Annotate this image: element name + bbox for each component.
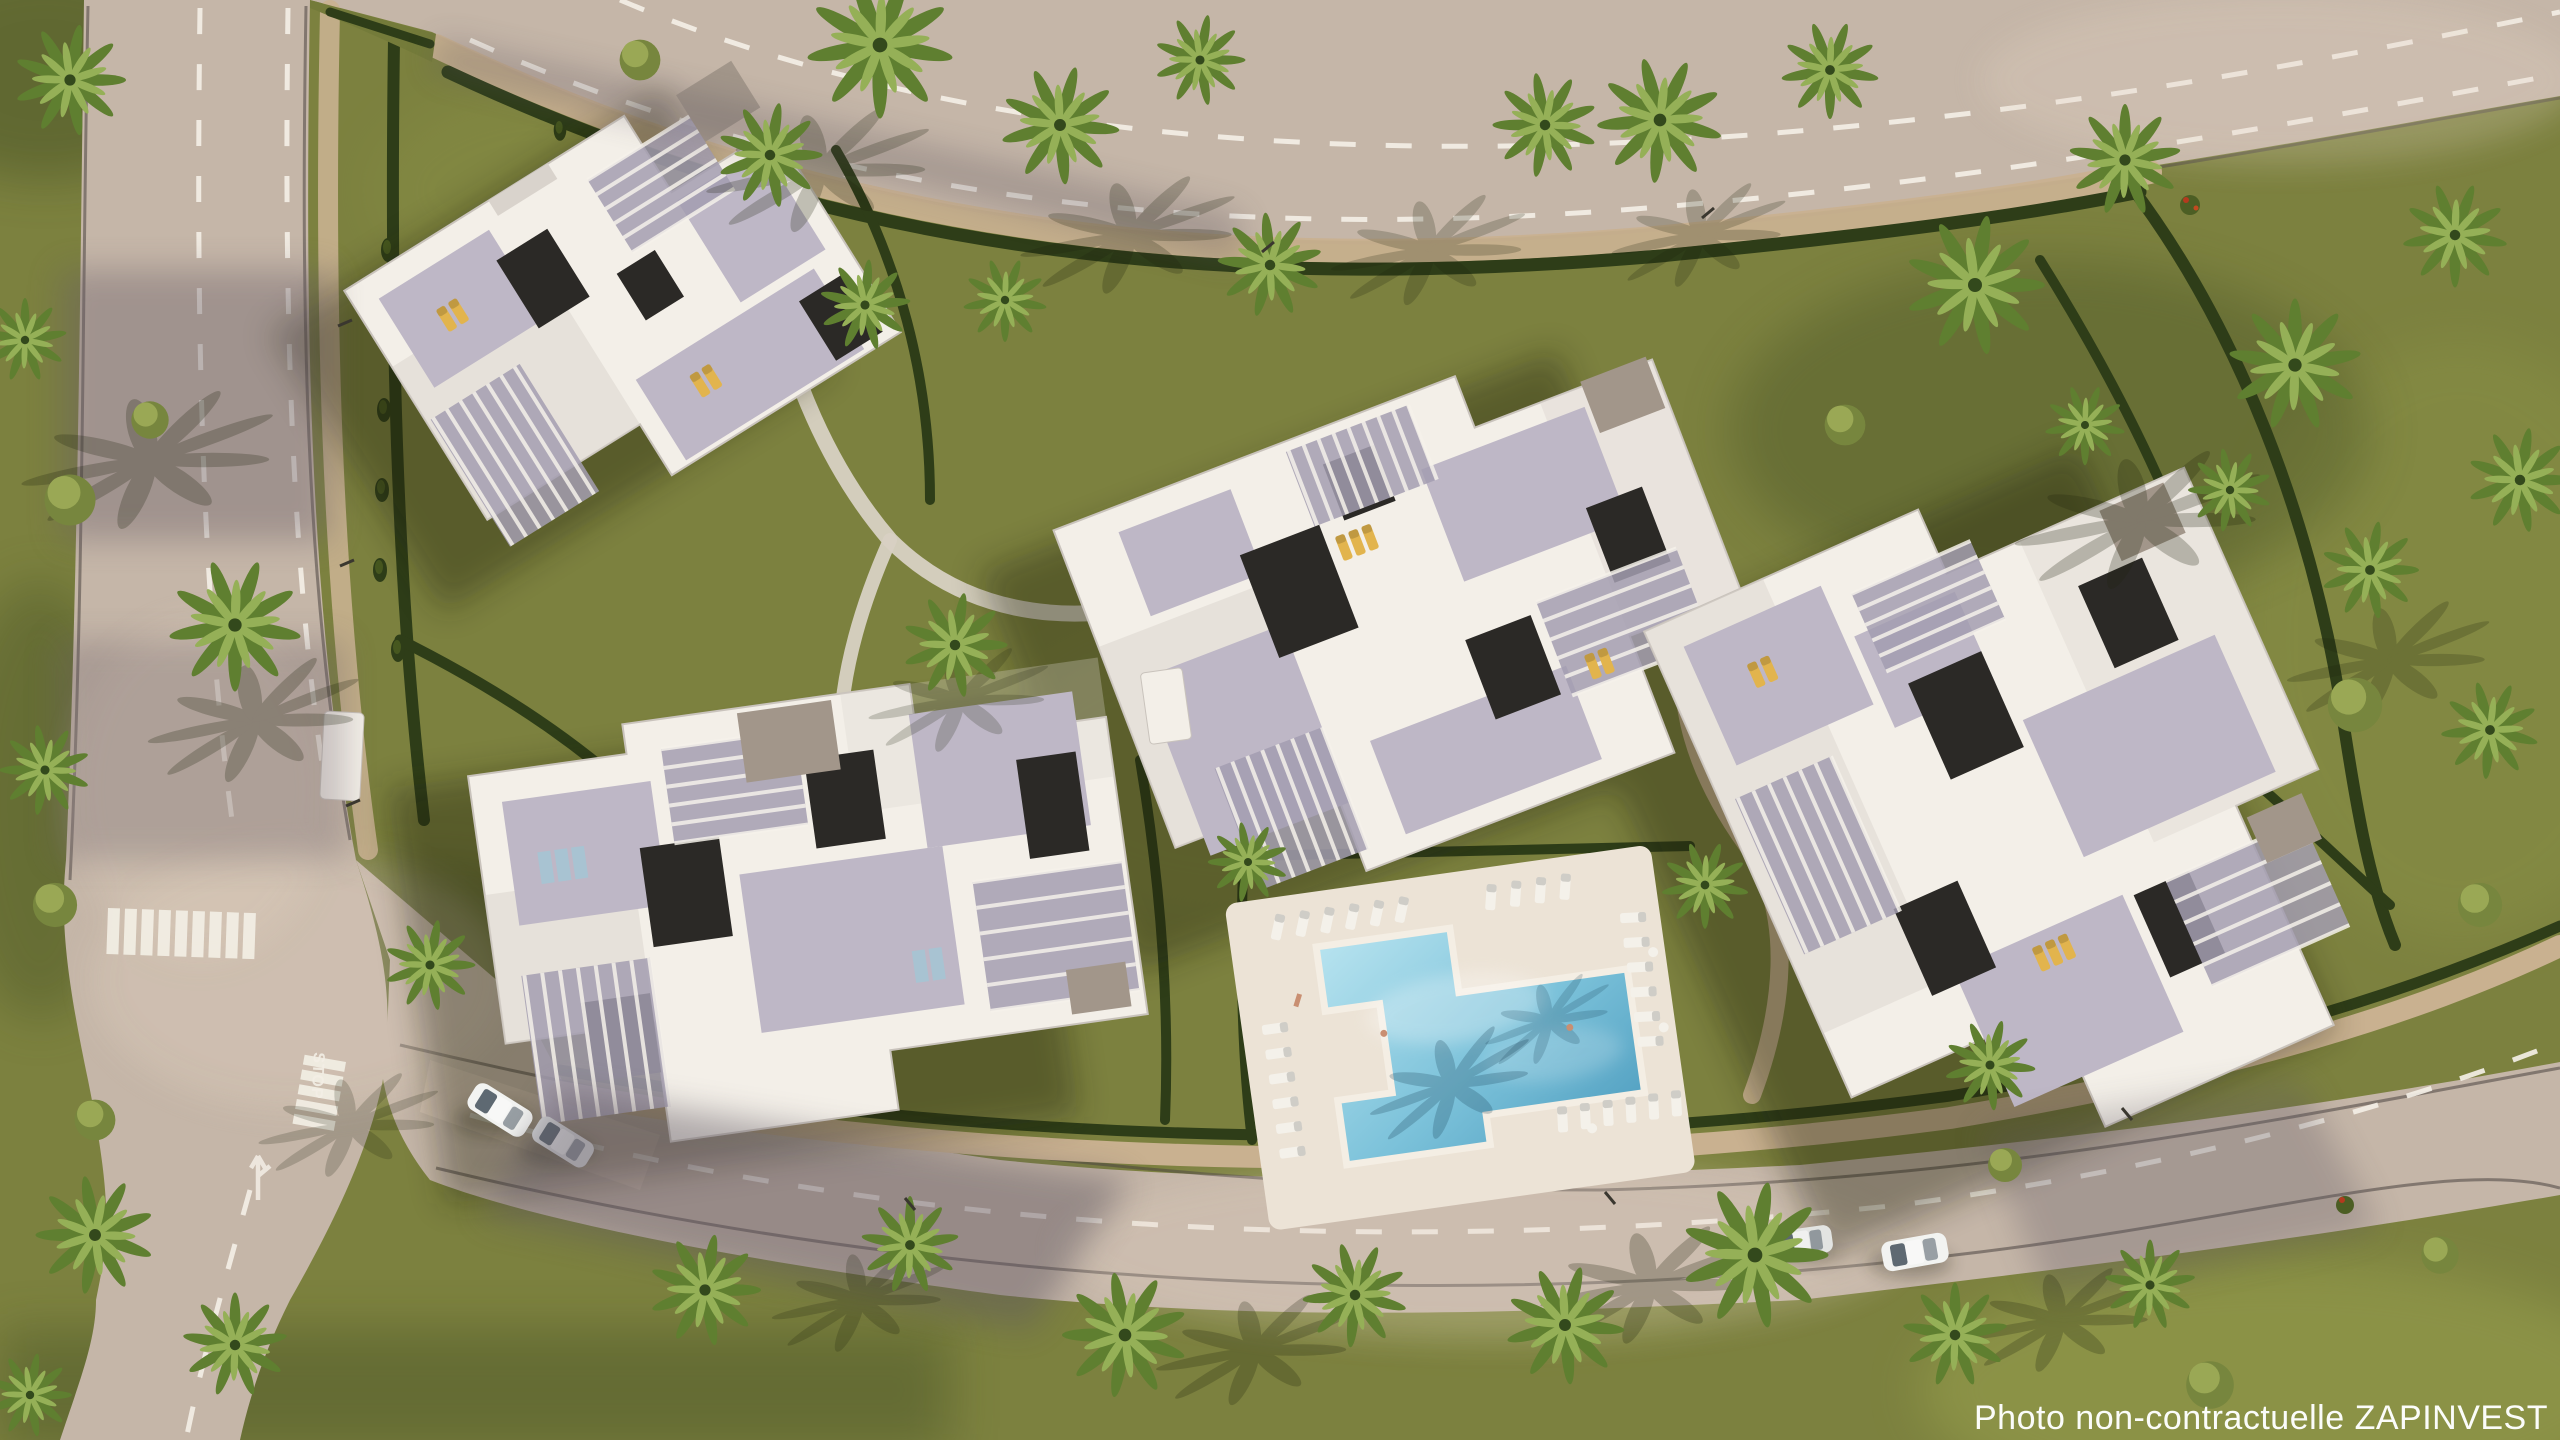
pool-area xyxy=(1224,844,1696,1231)
crosswalk-main xyxy=(106,908,256,959)
stop-marking: STOP xyxy=(308,1052,327,1100)
watermark: Photo non-contractuelle ZAPINVEST xyxy=(1974,1399,2548,1437)
scene: STOP xyxy=(0,0,2560,1440)
aerial-photo: STOP xyxy=(0,0,2560,1440)
